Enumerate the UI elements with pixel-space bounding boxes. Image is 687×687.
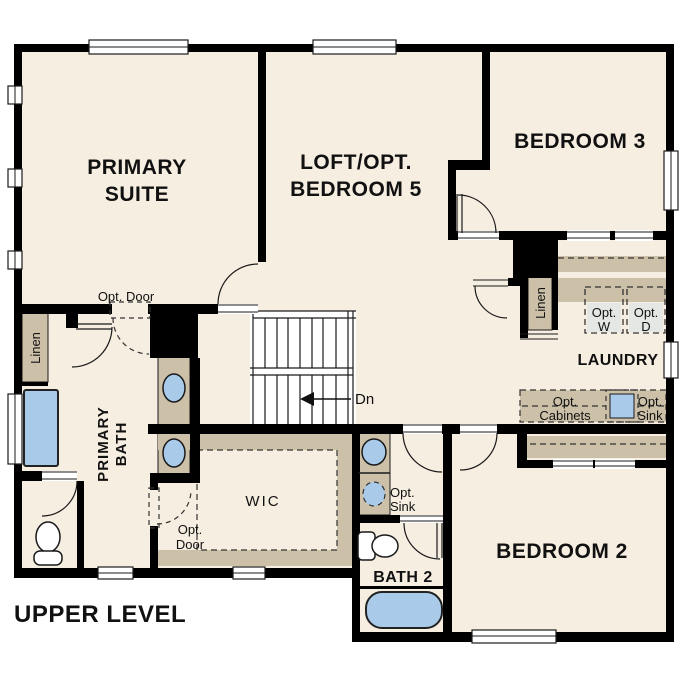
wic-shelf-top: [158, 434, 357, 450]
opt-sink-laundry-label-line1: Opt.: [638, 394, 663, 409]
bedroom3-label: BEDROOM 3: [514, 130, 646, 153]
primary-suite-label-line2: SUITE: [105, 183, 169, 206]
laundry-shelf: [558, 278, 666, 302]
stairs: [250, 311, 356, 424]
laundry-sink-icon: [610, 394, 634, 418]
opt-cabinets-label-line2: Cabinets: [539, 408, 591, 423]
floor-plan-svg: PRIMARY SUITE LOFT/OPT. BEDROOM 5 BEDROO…: [0, 0, 687, 687]
laundry-label: LAUNDRY: [577, 352, 658, 369]
opt-door-wic-label-line2: Door: [176, 537, 205, 552]
opt-door-primary-label: Opt. Door: [98, 289, 155, 304]
primary-bath-label-line1: PRIMARY: [95, 406, 112, 482]
wic-label: WIC: [245, 493, 280, 510]
linen-laundry-label: Linen: [533, 287, 548, 319]
opt-dryer-label-line2: D: [641, 319, 650, 334]
stairs-down-label: Dn: [355, 391, 374, 408]
opt-sink-bath2-icon: [363, 482, 385, 506]
bath2-bathtub-icon: [366, 592, 442, 628]
linen-primary-label: Linen: [28, 332, 43, 364]
upper-level-floor-plan: PRIMARY SUITE LOFT/OPT. BEDROOM 5 BEDROO…: [0, 0, 687, 687]
loft-label-line1: LOFT/OPT.: [300, 151, 412, 174]
primary-bathtub-icon: [24, 390, 58, 466]
plan-title: UPPER LEVEL: [14, 601, 186, 628]
bedroom2-label: BEDROOM 2: [496, 540, 628, 563]
primary-bath-label-line2: BATH: [113, 422, 130, 467]
opt-sink-bath2-label-line1: Opt.: [390, 485, 415, 500]
primary-sink1-icon: [163, 374, 185, 402]
opt-sink-laundry-label-line2: Sink: [637, 408, 663, 423]
primary-toilet-icon: [36, 522, 60, 552]
opt-door-wic-label-line1: Opt.: [178, 522, 203, 537]
opt-sink-bath2-label-line2: Sink: [390, 499, 416, 514]
bedroom2-closet-shelf: [520, 436, 666, 458]
opt-cabinets-label-line1: Opt.: [553, 394, 578, 409]
bath2-sink-icon: [362, 439, 386, 465]
opt-dryer-label-line1: Opt.: [634, 305, 659, 320]
opt-washer-label-line2: W: [598, 319, 611, 334]
loft-label-line2: BEDROOM 5: [290, 178, 422, 201]
primary-suite-label-line1: PRIMARY: [87, 156, 187, 179]
primary-sink2-icon: [163, 439, 185, 467]
opt-washer-label-line1: Opt.: [592, 305, 617, 320]
bath2-label: BATH 2: [373, 569, 433, 586]
wic-shelf-bottom: [158, 550, 357, 566]
